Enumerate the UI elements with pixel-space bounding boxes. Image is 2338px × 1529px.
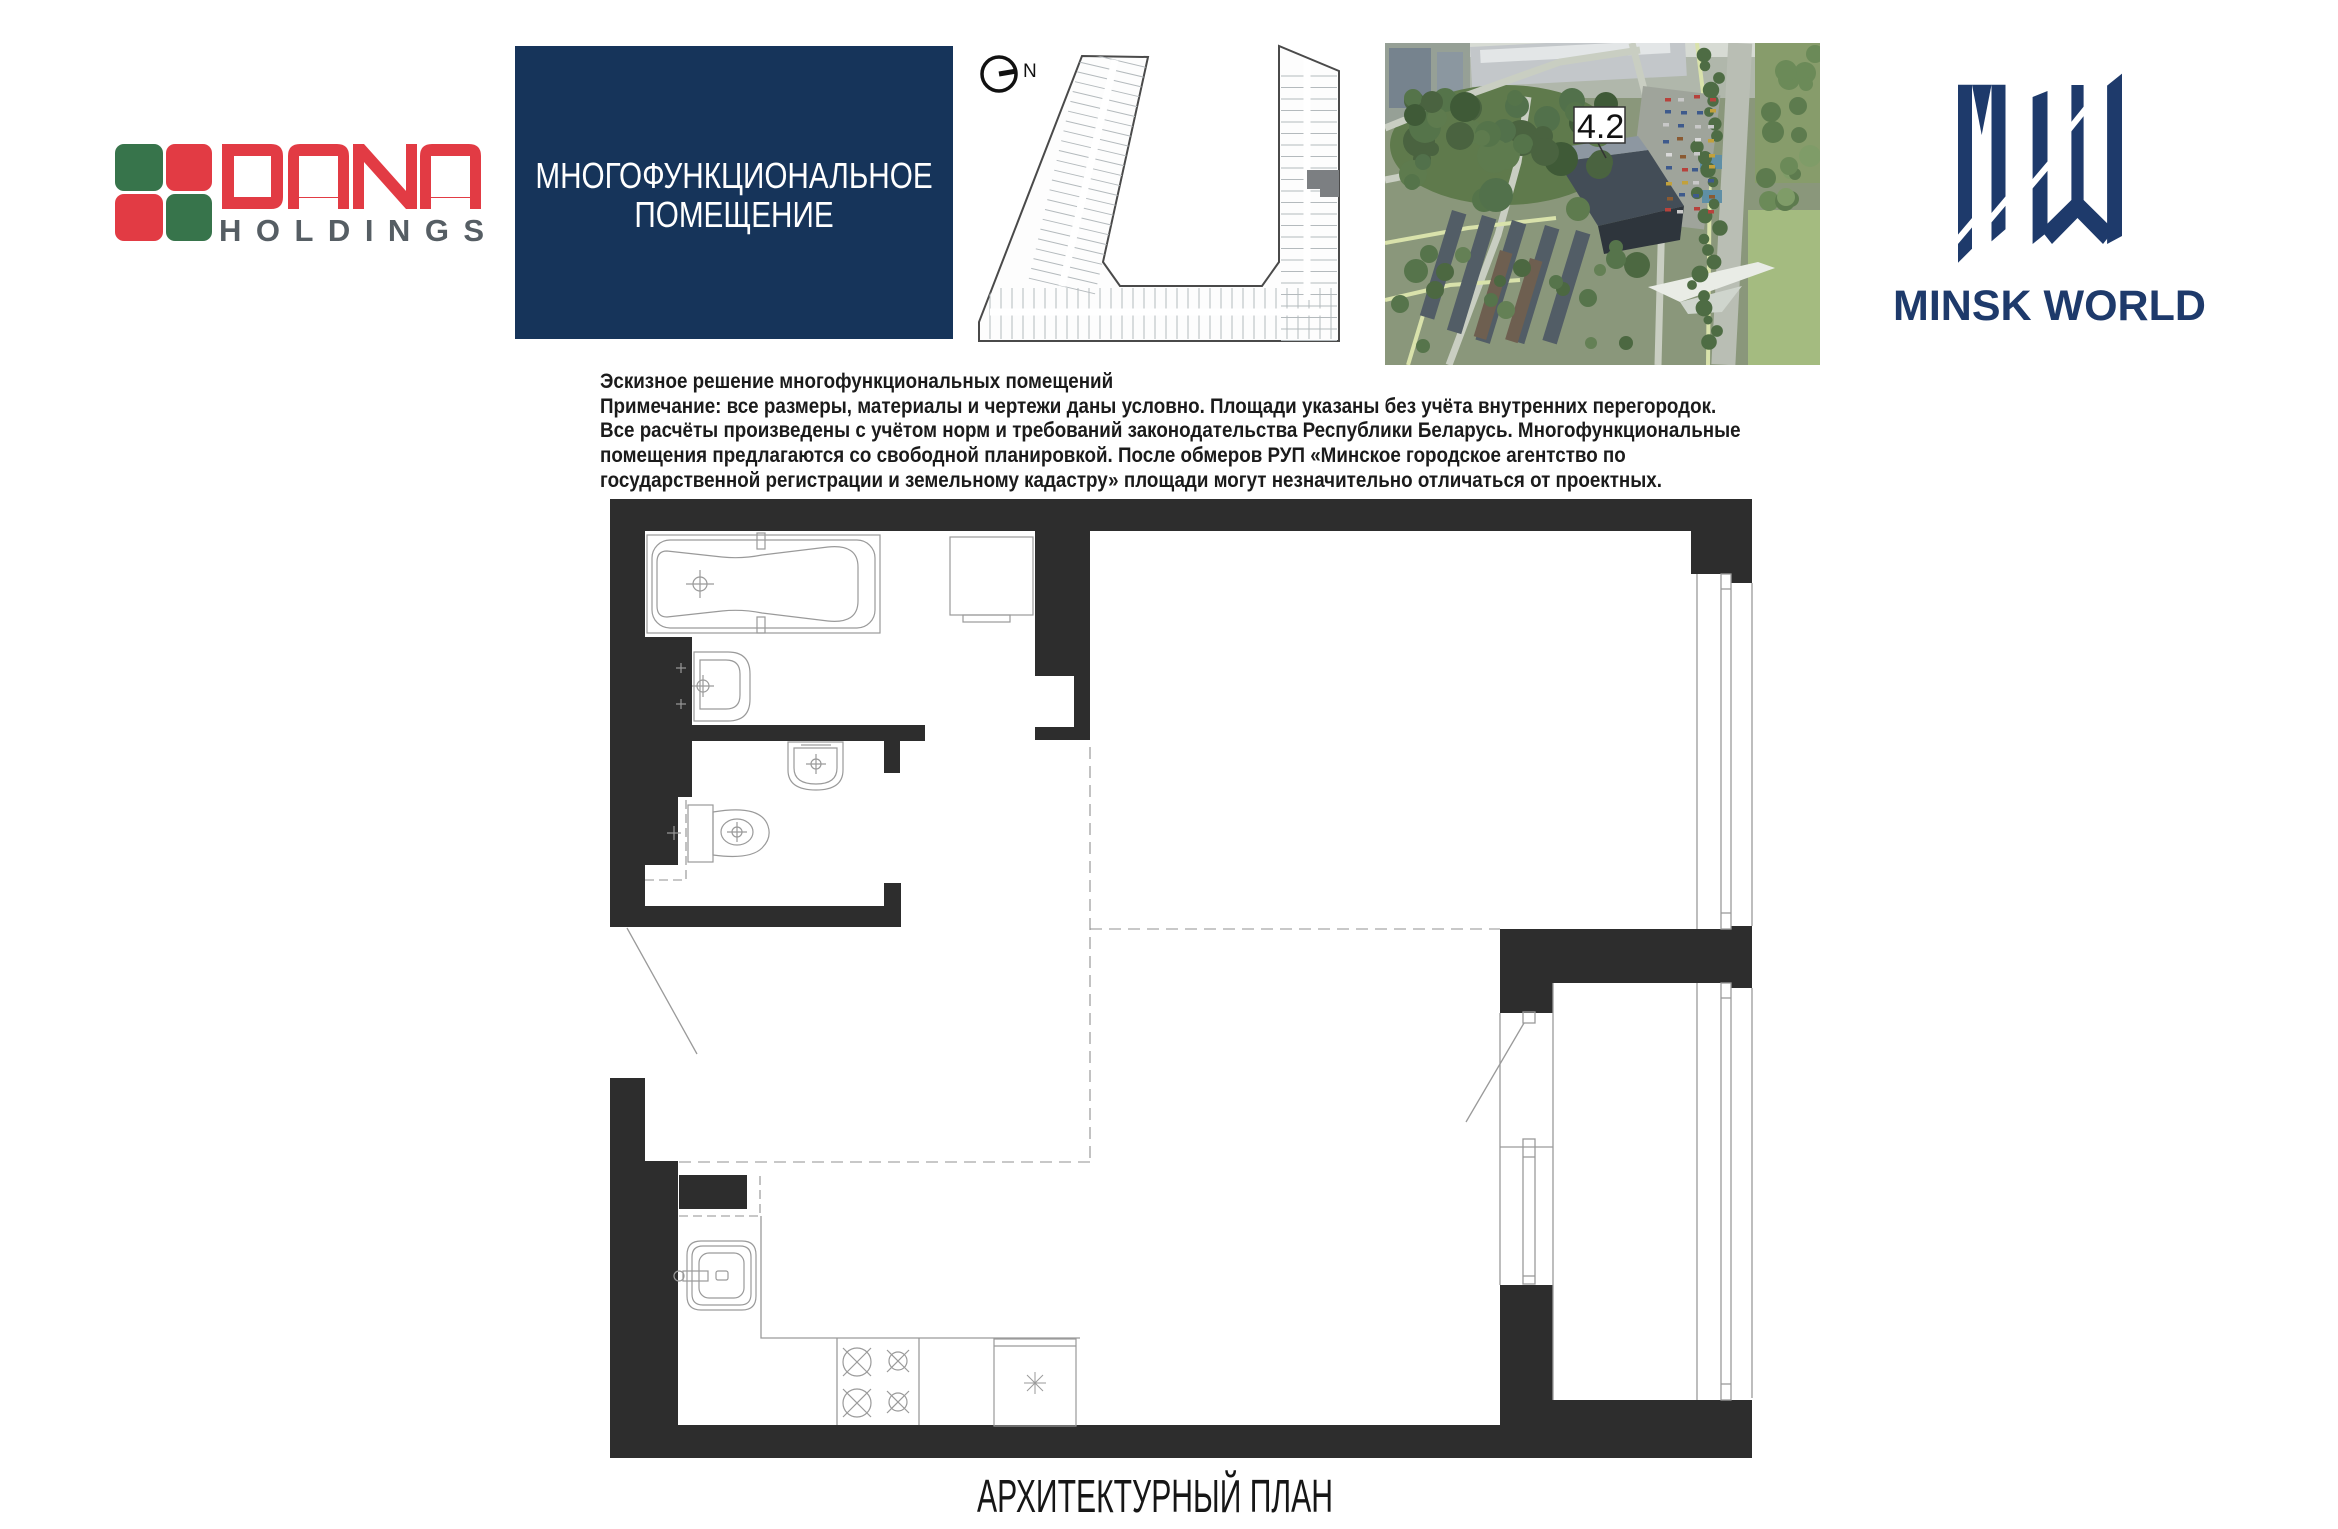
svg-text:N: N <box>1023 61 1037 82</box>
svg-text:MINSK WORLD: MINSK WORLD <box>1893 282 2206 330</box>
svg-text:4.2: 4.2 <box>1577 108 1624 146</box>
